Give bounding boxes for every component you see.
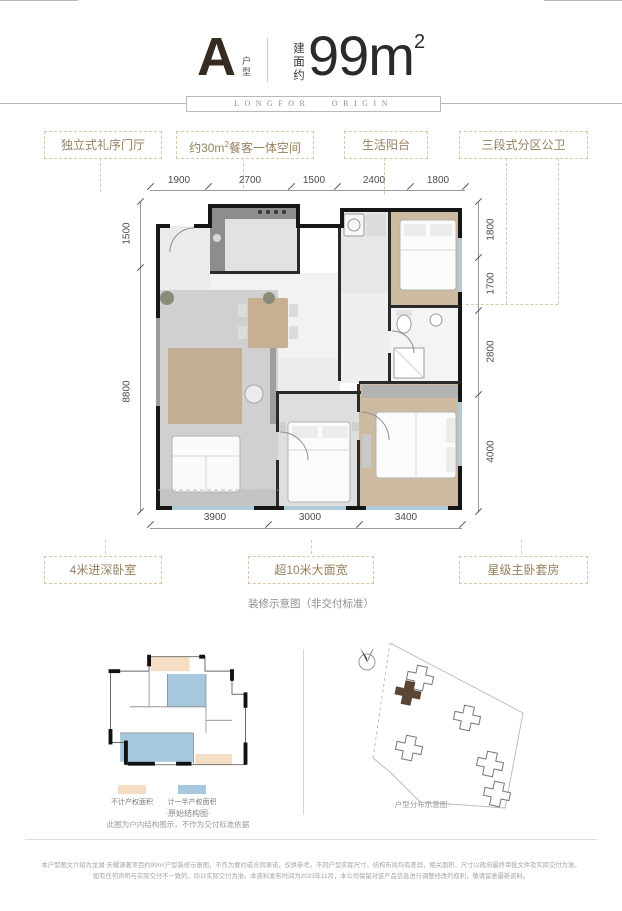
- dim-tick: [462, 183, 469, 190]
- leader-master: [521, 540, 522, 554]
- dim-line-left: [140, 202, 141, 512]
- compass-icon: [359, 648, 375, 670]
- structure-fills: [120, 657, 232, 765]
- leader-width: [311, 540, 312, 554]
- leader-bath-3: [466, 304, 558, 305]
- disclaimer-line-2: 如有任何声明与实际交付不一致的，均以实际交付为准。本资料发布时间为2023年11…: [0, 871, 622, 880]
- floorplan-brochure: A 户型 建面约 99m 2 LONGFOR ORIGIN 独立式礼序门厅 约3…: [0, 0, 622, 911]
- dim-tick: [205, 183, 212, 190]
- siteplan-drawing: [345, 636, 595, 826]
- floorplan-drawing: [150, 198, 465, 515]
- leader-bedroom: [105, 540, 106, 554]
- legend-swatch-blue: [178, 785, 206, 794]
- header-divider: [267, 38, 268, 82]
- siteplan-caption: ·户型分布示意图·: [366, 799, 476, 810]
- brand-banner: LONGFOR ORIGIN: [186, 96, 441, 112]
- leader-bath-1: [506, 158, 507, 304]
- dim-top-1: 1900: [154, 175, 204, 186]
- dim-right-2: 1700: [486, 264, 497, 304]
- top-left-rule: [0, 0, 78, 1]
- brand-banner-text: LONGFOR ORIGIN: [187, 97, 440, 110]
- banner-left-rule: [0, 103, 187, 104]
- top-right-rule: [544, 0, 622, 1]
- dim-top-2: 2700: [225, 175, 275, 186]
- area-prefix: 建面约: [290, 42, 306, 86]
- legend-label-tan: 不计产权面积: [104, 797, 160, 807]
- callout-dining: 约30m2餐客一体空间: [176, 131, 314, 159]
- dim-left-1: 1500: [122, 214, 133, 254]
- dim-tick: [147, 183, 154, 190]
- area-value-group: 99m 2: [308, 28, 425, 84]
- unit-type-label: 户型: [240, 56, 253, 82]
- plan-note: 装修示意图（非交付标准）: [0, 596, 622, 611]
- callout-bath: 三段式分区公卫: [459, 131, 588, 159]
- dim-tick: [459, 521, 466, 528]
- structure-caption: 此图为户内结构图示，不作为交付标准依据: [58, 819, 298, 830]
- leader-bath-2: [558, 158, 559, 304]
- panel-divider: [303, 649, 304, 815]
- callout-balcony: 生活阳台: [344, 131, 428, 159]
- structure-miniplan: [88, 648, 268, 783]
- dim-right-4: 4000: [486, 432, 497, 472]
- unit-type-letter: A: [197, 30, 236, 84]
- callout-entry: 独立式礼序门厅: [44, 131, 162, 159]
- legend-label-blue: 计一半产权面积: [162, 797, 222, 807]
- structure-title: ·原始结构图·: [78, 808, 298, 819]
- callout-dining-pre: 约30m: [189, 141, 224, 155]
- callout-frontage: 超10米大面宽: [248, 556, 374, 584]
- dim-top-3: 1500: [289, 175, 339, 186]
- dim-line-right: [478, 202, 479, 512]
- dim-right-1: 1800: [486, 210, 497, 250]
- dim-top-4: 2400: [349, 175, 399, 186]
- dim-line-bottom: [150, 528, 462, 529]
- legend-swatch-tan: [118, 785, 146, 794]
- banner-right-rule: [439, 103, 622, 104]
- bedroom-top-right-furniture: [400, 220, 456, 290]
- dim-tick: [356, 521, 363, 528]
- callout-bedroom-depth: 4米进深卧室: [44, 556, 162, 584]
- dim-tick: [265, 521, 272, 528]
- dim-left-2: 8800: [122, 372, 133, 412]
- callout-dining-post: 餐客一体空间: [229, 141, 301, 155]
- dim-tick: [147, 521, 154, 528]
- dim-line-top: [150, 190, 465, 191]
- footer-rule: [25, 839, 597, 840]
- area-value: 99m: [308, 28, 414, 84]
- disclaimer-line-1: 本户型图文介绍为龙湖·天曜源著项目约99m²户型装修示意图，不作为要约或合同承诺…: [0, 860, 622, 869]
- site-buildings: [393, 664, 512, 809]
- dim-tick: [137, 508, 144, 515]
- area-exponent: 2: [414, 32, 425, 52]
- dim-top-5: 1800: [413, 175, 463, 186]
- site-boundary-dashed: [373, 643, 390, 758]
- leader-entry: [100, 158, 101, 192]
- dim-tick: [475, 508, 482, 515]
- callout-master-suite: 星级主卧套房: [459, 556, 588, 584]
- dim-right-3: 2800: [486, 332, 497, 372]
